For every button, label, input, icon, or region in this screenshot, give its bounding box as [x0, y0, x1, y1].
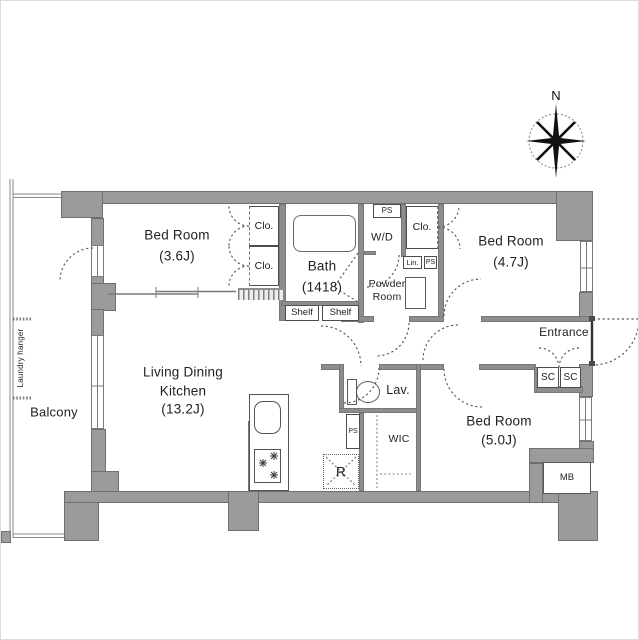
balcony-corner-post — [1, 531, 11, 543]
laundry-hanger-name: Laundry hanger — [17, 329, 25, 388]
shelf-box: Shelf — [322, 305, 359, 321]
pipe-space-box: PS — [346, 414, 360, 449]
wd-bottom-stub — [364, 251, 376, 255]
balcony-name: Balcony — [30, 406, 78, 419]
left-wall-segment — [91, 429, 106, 473]
powder-room-name-line1: Powder — [369, 279, 406, 290]
lav-left-wall — [339, 364, 344, 413]
hall-bottom-wall — [379, 364, 444, 370]
linen-label: Lin. — [406, 259, 418, 267]
meter-box-wall — [529, 463, 543, 503]
bedroom-47-size: (4.7J) — [493, 255, 529, 269]
linen-box: Lin. — [403, 256, 422, 269]
bath-name: Bath — [308, 259, 337, 273]
bedroom-50-top-wall — [479, 364, 536, 370]
shoe-closet-label: SC — [564, 373, 578, 383]
closet-box: Clo. — [249, 206, 279, 246]
closet-label: Clo. — [255, 261, 274, 272]
entrance-top-wall — [481, 316, 593, 322]
meter-box-label: MB — [560, 473, 574, 483]
bottom-wall — [64, 491, 598, 503]
shelf-box: Shelf — [285, 305, 319, 321]
ldk-name-line2: Kitchen — [160, 384, 206, 398]
bedroom-36-size: (3.6J) — [159, 249, 195, 263]
kitchen-sink-icon — [254, 401, 281, 434]
pipe-space-box: PS — [424, 256, 437, 269]
compass-icon: N — [526, 88, 586, 178]
shelf-label: Shelf — [291, 308, 313, 318]
bedroom-36-window — [91, 245, 104, 277]
entrance-name: Entrance — [539, 326, 589, 338]
entrance-door-leaf — [589, 316, 595, 366]
bottom-right-corner-wall — [558, 491, 598, 541]
bedroom-50-window — [579, 397, 592, 441]
left-wall-segment — [91, 218, 104, 246]
floor-plan-canvas: Clo. Clo. PS Clo. Lin. PS Shelf Shelf SC… — [0, 0, 639, 640]
pipe-space-label: PS — [348, 428, 357, 435]
left-wall-pier — [91, 283, 116, 311]
bedroom-50-left-wall — [416, 364, 421, 491]
closet-label: Clo. — [255, 221, 274, 232]
shoe-closet-box: SC — [537, 367, 559, 388]
toilet-bowl-icon — [356, 381, 380, 403]
sliding-door-lines — [108, 287, 236, 298]
meter-box-wall — [529, 448, 594, 463]
bedroom-36-name: Bed Room — [144, 228, 209, 242]
bedroom-47-window — [580, 241, 593, 292]
ldk-size: (13.2J) — [161, 402, 204, 416]
shelf-label: Shelf — [330, 308, 352, 318]
ldk-balcony-window — [91, 335, 104, 429]
top-wall — [71, 191, 593, 204]
shoe-closet-label: SC — [541, 373, 555, 383]
stove-icon — [254, 449, 281, 483]
powder-room-name-line2: Room — [373, 292, 402, 303]
hatched-counter-strip — [238, 288, 284, 300]
bath-size: (1418) — [302, 280, 342, 294]
hall-top-wall — [409, 316, 444, 322]
bedroom-50-size: (5.0J) — [481, 433, 517, 447]
bedroom-47-left-wall — [438, 204, 444, 318]
compass-north-label: N — [551, 88, 560, 103]
bedroom-47-name: Bed Room — [478, 234, 543, 248]
bedroom-50-name: Bed Room — [466, 414, 531, 428]
closet-box: Clo. — [406, 206, 438, 249]
shoe-closet-box: SC — [560, 367, 581, 388]
top-left-corner-wall — [61, 191, 103, 218]
bathtub-icon — [293, 215, 356, 252]
pipe-space-box: PS — [373, 204, 401, 218]
meter-box: MB — [543, 462, 591, 494]
closet-label: Clo. — [413, 222, 432, 233]
pipe-space-label: PS — [382, 207, 393, 215]
left-wall-segment — [91, 309, 104, 336]
wic-hanger-lines — [377, 415, 411, 488]
top-right-pillar — [556, 191, 593, 241]
lav-bottom-wall — [339, 408, 421, 413]
bottom-pillar — [228, 491, 259, 531]
ldk-name-line1: Living Dining — [143, 365, 223, 379]
closet-box: Clo. — [249, 246, 279, 286]
pipe-space-label: PS — [426, 259, 435, 266]
refrigerator-label: R — [336, 465, 346, 479]
washer-dryer-label: W/D — [371, 233, 393, 244]
wic-name: WIC — [388, 434, 409, 445]
washbasin-icon — [405, 277, 426, 309]
lav-name: Lav. — [386, 384, 410, 397]
